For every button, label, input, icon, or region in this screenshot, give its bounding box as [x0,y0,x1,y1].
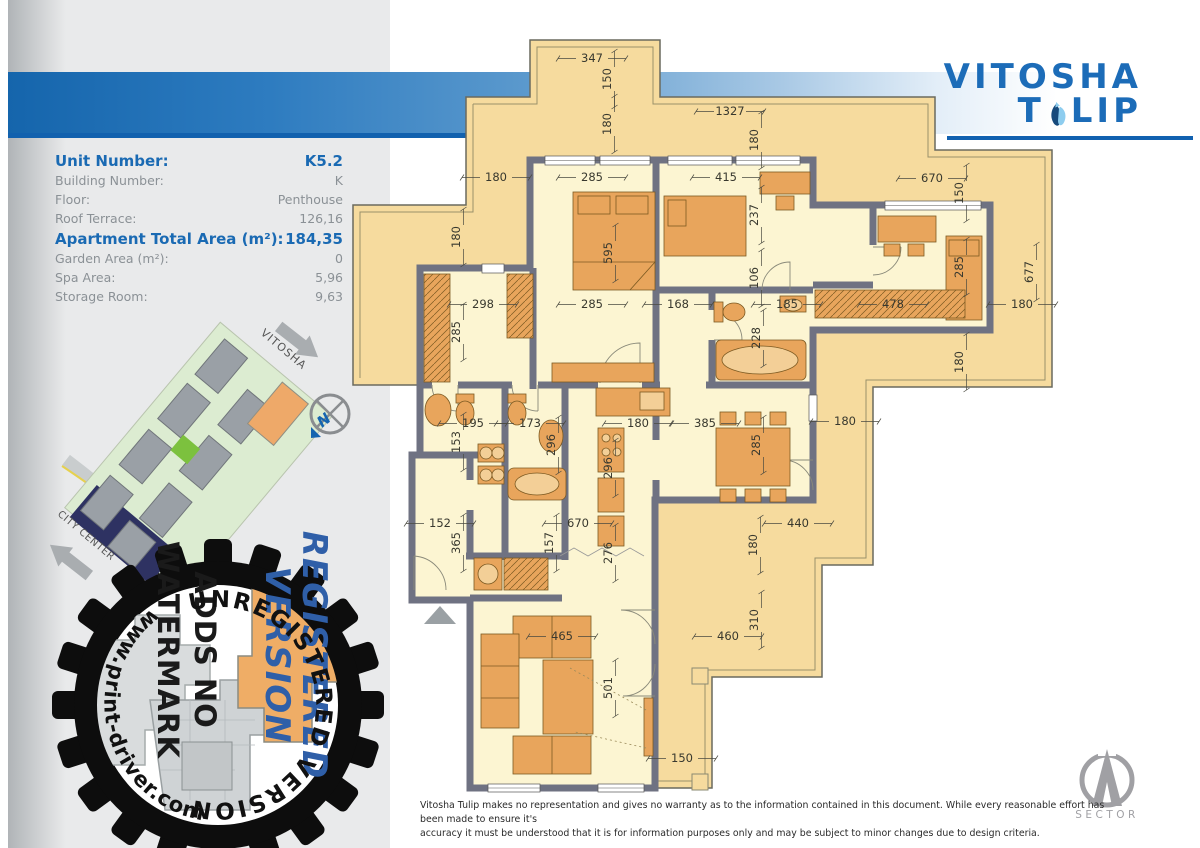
dimension-label: 152 [429,516,451,530]
dimension-label: 180 [834,414,856,428]
tulip-icon [1046,99,1070,129]
dimension-label: 195 [462,416,484,430]
wardrobe [424,274,450,382]
brand-logo: VITOSHA T LIP [930,60,1142,128]
dimension-label: 150 [952,182,966,204]
floor-plan: 3471501327180180180285415670150237180595… [353,40,1058,792]
info-value: Penthouse [278,192,343,207]
watermark-stamp: REGISTERED VERSION ADDS NO WATERMARK UNR… [52,531,384,848]
info-label: Apartment Total Area (m²): [55,230,284,248]
info-row: Apartment Total Area (m²):184,35 [55,230,343,248]
dimension-label: 285 [581,297,603,311]
dimension-label: 150 [600,68,614,90]
entrance-arrow-icon [424,606,456,624]
dimension-label: 157 [542,532,556,554]
dimension-label: 153 [449,431,463,453]
brand-logo-line2: T LIP [930,94,1142,128]
dimension-label: 180 [485,170,507,184]
dimension-label: 465 [551,629,573,643]
info-value: 0 [335,251,343,266]
dimension-label: 180 [952,351,966,373]
dimension-label: 670 [921,171,943,185]
info-row: Spa Area:5,96 [55,270,343,285]
dimension-label: 296 [601,457,615,479]
wardrobe [504,558,548,590]
sink [425,394,451,426]
dimension-label: 106 [747,267,761,289]
info-row: Roof Terrace:126,16 [55,211,343,226]
dimension-label: 185 [776,297,798,311]
info-row: Storage Room:9,63 [55,289,343,304]
info-value: K5.2 [305,152,343,170]
site-area [62,322,332,604]
dimension-label: 501 [601,677,615,699]
dimension-label: 298 [472,297,494,311]
dimension-label: 1327 [715,104,744,118]
disclaimer: Vitosha Tulip makes no representation an… [420,799,1120,841]
info-value: K [335,173,343,188]
dimension-label: 285 [449,321,463,343]
unit-info-panel: Unit Number:K5.2Building Number:KFloor:P… [55,152,343,308]
dimension-label: 237 [747,204,761,226]
info-row: Building Number:K [55,173,343,188]
dimension-label: 285 [749,434,763,456]
stamp-line-watermark: WATERMARK [151,541,185,759]
info-row: Unit Number:K5.2 [55,152,343,170]
info-label: Floor: [55,192,90,207]
info-label: Building Number: [55,173,164,188]
toilet [714,302,723,322]
brand-logo-underline [947,136,1193,140]
chair [776,196,794,210]
dimension-label: 385 [694,416,716,430]
stamp-line-version: VERSION [257,566,297,743]
railing-post [692,668,708,684]
info-value: 126,16 [299,211,343,226]
dimension-label: 310 [747,609,761,631]
dimension-label: 276 [601,542,615,564]
dimension-label: 180 [746,534,760,556]
dimension-label: 670 [567,516,589,530]
dimension-label: 365 [449,532,463,554]
dimension-label: 285 [581,170,603,184]
tv [644,698,653,756]
dimension-label: 285 [952,256,966,278]
desk [760,172,810,194]
info-label: Unit Number: [55,152,169,170]
info-label: Roof Terrace: [55,211,137,226]
sofa [481,634,519,728]
disclaimer-line1: Vitosha Tulip makes no representation an… [420,799,1120,827]
info-label: Garden Area (m²): [55,251,169,266]
dimension-label: 180 [627,416,649,430]
dimension-label: 595 [601,242,615,264]
info-row: Garden Area (m²):0 [55,251,343,266]
dimension-label: 347 [581,51,603,65]
dimension-label: 150 [671,751,693,765]
desk [878,216,936,242]
info-value: 184,35 [285,230,343,248]
dimension-label: 440 [787,516,809,530]
info-label: Storage Room: [55,289,148,304]
dimension-label: 168 [667,297,689,311]
dimension-label: 415 [715,170,737,184]
disclaimer-line2: accuracy it must be understood that it i… [420,827,1120,841]
coffee-table [543,660,593,734]
dimension-label: 180 [600,113,614,135]
dimension-label: 228 [749,327,763,349]
info-label: Spa Area: [55,270,115,285]
dimension-label: 296 [544,434,558,456]
info-value: 5,96 [315,270,343,285]
dresser [552,363,654,382]
dimension-label: 180 [747,129,761,151]
info-value: 9,63 [315,289,343,304]
dimension-label: 173 [519,416,541,430]
railing-post [692,774,708,790]
dimension-label: 460 [717,629,739,643]
brand-logo-line1: VITOSHA [930,60,1142,94]
info-row: Floor:Penthouse [55,192,343,207]
dimension-label: 180 [1011,297,1033,311]
wardrobe [507,274,533,338]
dimension-label: 180 [449,226,463,248]
dimension-label: 677 [1022,261,1036,283]
dimension-label: 478 [882,297,904,311]
